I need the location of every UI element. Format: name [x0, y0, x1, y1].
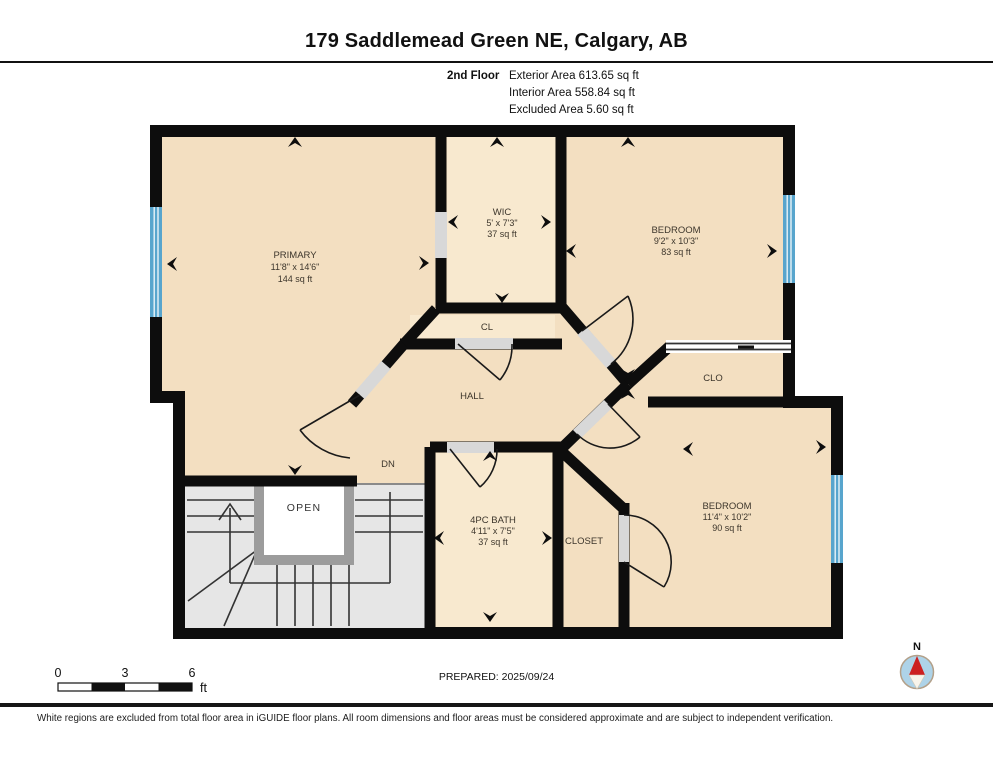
window-primary: [150, 207, 162, 317]
svg-text:37 sq ft: 37 sq ft: [487, 229, 517, 239]
sliding-door: [666, 340, 791, 353]
room-label-closet: CLOSET: [565, 536, 603, 547]
room-label-clo: CLO: [703, 373, 723, 384]
room-label-primary: PRIMARY 11'8" x 14'6" 144 sq ft: [271, 250, 320, 284]
svg-text:BEDROOM: BEDROOM: [702, 501, 751, 512]
label-open: OPEN: [287, 502, 322, 514]
svg-text:90 sq ft: 90 sq ft: [712, 523, 742, 533]
open-well: [264, 481, 344, 555]
svg-text:11'8" x 14'6": 11'8" x 14'6": [271, 262, 320, 272]
label-dn: DN: [381, 459, 395, 470]
svg-text:9'2" x 10'3": 9'2" x 10'3": [654, 236, 698, 246]
svg-text:N: N: [913, 641, 921, 653]
svg-text:WIC: WIC: [493, 207, 512, 218]
window-bedroom1: [783, 195, 795, 283]
svg-text:PRIMARY: PRIMARY: [273, 250, 317, 261]
svg-text:37 sq ft: 37 sq ft: [478, 537, 508, 547]
footer-divider: [0, 703, 993, 707]
room-label-hall: HALL: [460, 391, 484, 402]
svg-text:BEDROOM: BEDROOM: [651, 225, 700, 236]
room-label-cl: CL: [481, 322, 493, 333]
floor-plan: PRIMARY 11'8" x 14'6" 144 sq ft WIC 5' x…: [0, 0, 993, 768]
svg-text:4PC BATH: 4PC BATH: [470, 515, 516, 526]
svg-text:5' x 7'3": 5' x 7'3": [486, 218, 517, 228]
scale-unit: ft: [200, 681, 207, 695]
svg-text:83 sq ft: 83 sq ft: [661, 247, 691, 257]
prepared-date: PREPARED: 2025/09/24: [0, 671, 993, 683]
svg-text:4'11" x 7'5": 4'11" x 7'5": [471, 526, 515, 536]
disclaimer-text: White regions are excluded from total fl…: [37, 713, 833, 724]
svg-text:11'4" x 10'2": 11'4" x 10'2": [703, 512, 752, 522]
svg-text:144 sq ft: 144 sq ft: [278, 274, 313, 284]
window-bedroom2: [831, 475, 843, 563]
